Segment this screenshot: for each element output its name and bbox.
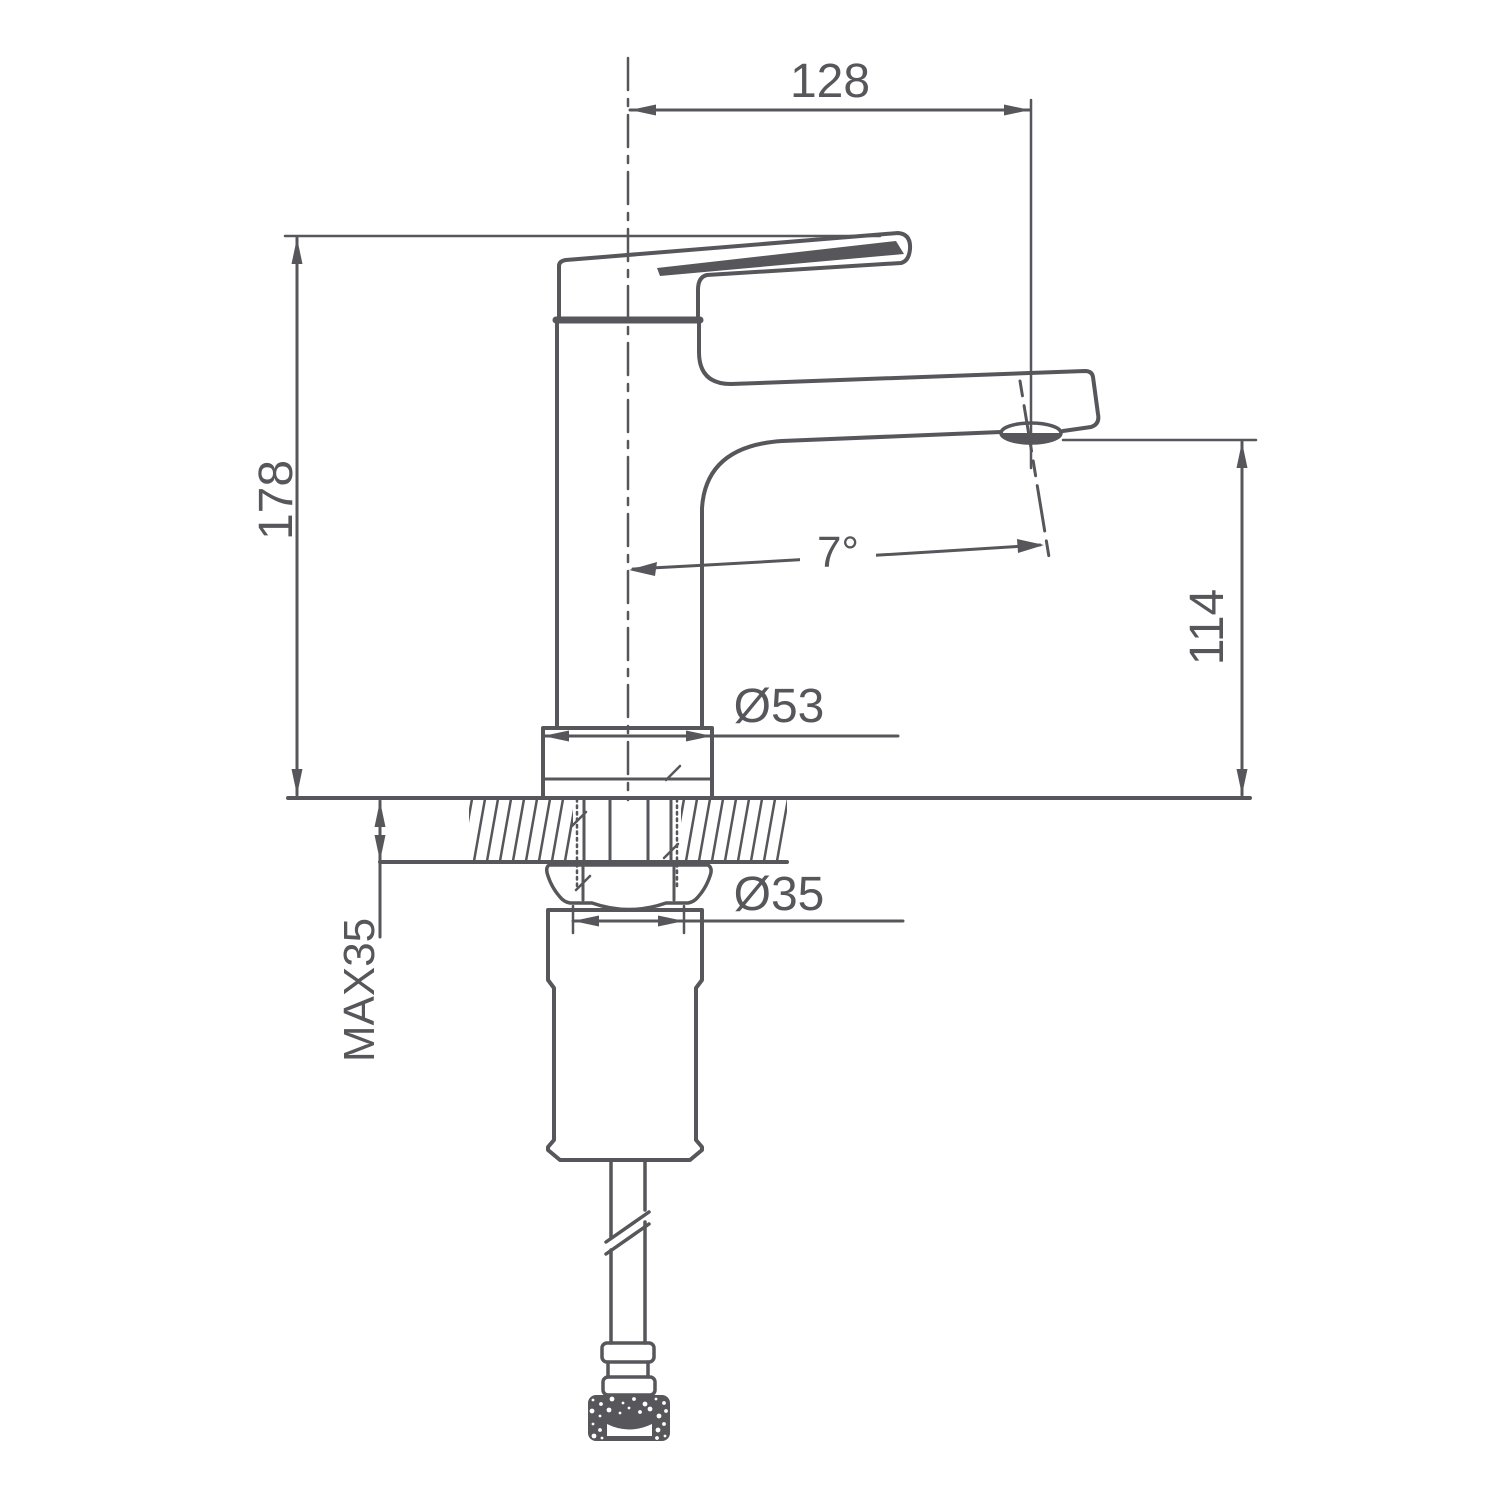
dimension-label-angle: 7° bbox=[817, 528, 859, 577]
dimension-label-d35: Ø35 bbox=[734, 868, 825, 921]
hose-nut bbox=[588, 1395, 670, 1441]
supply-hose bbox=[606, 1160, 649, 1343]
dimension-spout-angle: 7° bbox=[629, 520, 1044, 580]
spout-top-edge bbox=[699, 323, 1098, 431]
dimension-shank-diameter: Ø35 bbox=[573, 868, 903, 933]
dimension-label-114: 114 bbox=[1181, 589, 1234, 666]
dimension-deck-thickness: MAX35 bbox=[335, 801, 386, 1062]
dimension-label-d53: Ø53 bbox=[734, 680, 825, 733]
spout-tip-axis-line bbox=[1020, 381, 1049, 557]
deck-hatch-left bbox=[461, 799, 589, 861]
dimension-label-178: 178 bbox=[250, 460, 303, 540]
dimension-spout-reach: 128 bbox=[630, 55, 1031, 468]
threaded-shank bbox=[572, 766, 680, 890]
dimension-base-diameter: Ø53 bbox=[543, 680, 898, 742]
deck-hatch-right bbox=[673, 799, 801, 861]
dimension-outlet-height: 114 bbox=[1063, 440, 1256, 795]
technical-drawing-canvas: 128 178 114 MAX35 Ø53 Ø35 bbox=[0, 0, 1500, 1500]
dimension-label-128: 128 bbox=[790, 55, 870, 108]
dimension-label-max35: MAX35 bbox=[335, 918, 384, 1062]
valve-body bbox=[548, 910, 702, 1160]
mounting-nut bbox=[547, 865, 711, 910]
faucet-dimension-drawing: 128 178 114 MAX35 Ø53 Ø35 bbox=[0, 0, 1500, 1500]
hose-end-fitting bbox=[588, 1343, 670, 1441]
